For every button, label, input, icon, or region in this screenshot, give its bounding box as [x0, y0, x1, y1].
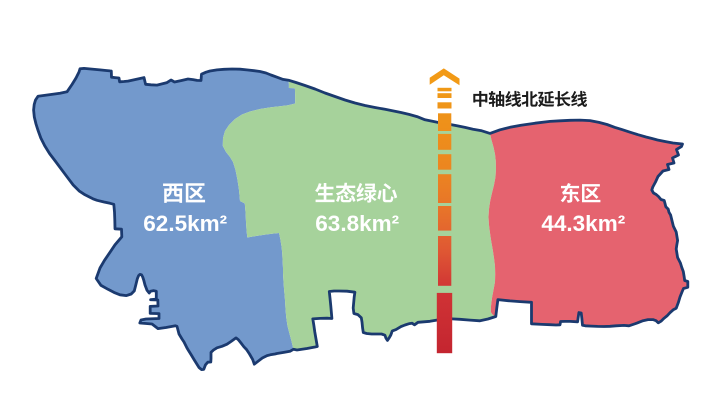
svg-text:44.3km²: 44.3km²	[541, 211, 625, 236]
svg-text:62.5km²: 62.5km²	[143, 211, 227, 236]
svg-text:63.8km²: 63.8km²	[315, 211, 399, 236]
